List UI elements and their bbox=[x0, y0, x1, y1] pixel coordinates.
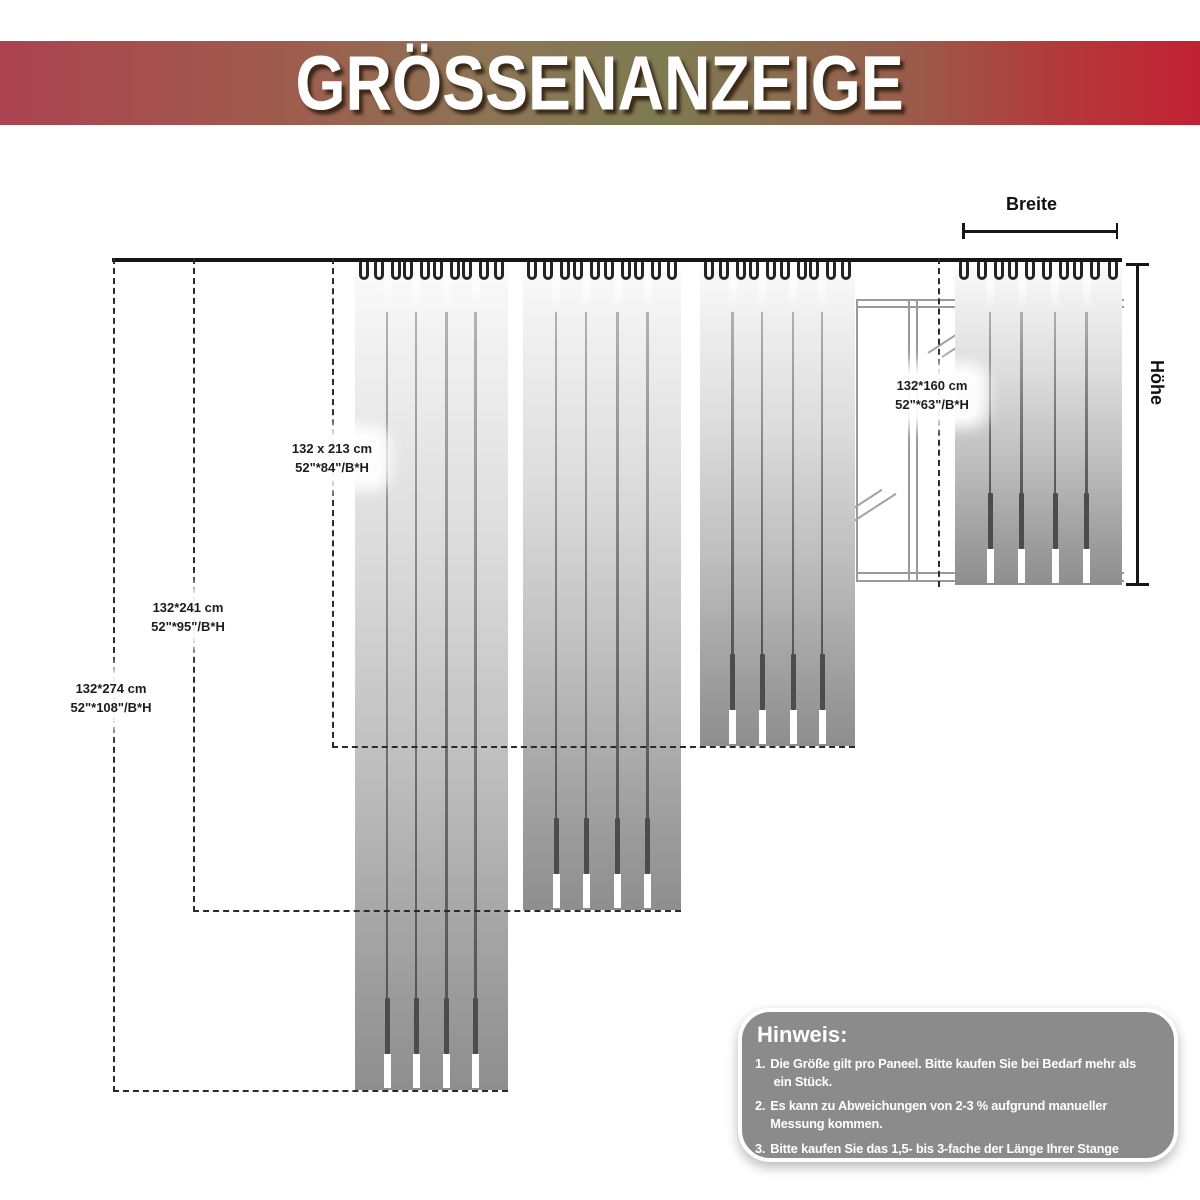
fabric-fold-line bbox=[989, 312, 992, 493]
size-label-cm: 132 x 213 cm bbox=[292, 439, 372, 458]
fabric-fold-line bbox=[585, 312, 588, 818]
note-item: 2.Es kann zu Abweichungen von 2-3 % aufg… bbox=[755, 1097, 1162, 1132]
fabric-highlight bbox=[383, 268, 391, 312]
fabric-fold-line bbox=[555, 312, 558, 818]
fabric-hem-gap bbox=[729, 710, 736, 744]
size-guide-infographic: GRÖSSENANZEIGE 132*274 cm52"*108"/B*H132… bbox=[0, 0, 1200, 1200]
fabric-hem-gap bbox=[384, 1054, 391, 1088]
fabric-hem-gap bbox=[614, 874, 621, 908]
fabric-fold-shadow bbox=[414, 998, 419, 1054]
height-measure-label: Höhe bbox=[1146, 360, 1167, 405]
fabric-fold-line bbox=[616, 312, 619, 818]
fabric-hem-gap bbox=[1052, 549, 1059, 583]
fabric-highlight bbox=[412, 268, 420, 312]
width-measure-line bbox=[962, 230, 1118, 233]
size-label-inch: 52"*63"/B*H bbox=[895, 395, 969, 414]
fabric-highlight bbox=[986, 268, 994, 312]
size-label-inch: 52"*95"/B*H bbox=[151, 617, 225, 636]
fabric-fold-shadow bbox=[791, 654, 796, 710]
note-item-number: 1. bbox=[755, 1055, 765, 1090]
size-label-cm: 132*274 cm bbox=[71, 679, 152, 698]
height-measure-line bbox=[1136, 263, 1139, 585]
fabric-hem-gap bbox=[443, 1054, 450, 1088]
height-measure-tick-top bbox=[1126, 263, 1149, 266]
size-label-cm: 132*241 cm bbox=[151, 598, 225, 617]
fabric-highlight bbox=[758, 268, 766, 312]
fabric-fold-line bbox=[1085, 312, 1088, 493]
size-label-inch: 52"*108"/B*H bbox=[71, 698, 152, 717]
fabric-hem-gap bbox=[819, 710, 826, 744]
fabric-fold-shadow bbox=[645, 818, 650, 874]
fabric-hem-gap bbox=[1083, 549, 1090, 583]
note-item-number: 2. bbox=[755, 1097, 765, 1132]
dashed-guide-vertical bbox=[332, 258, 334, 748]
fabric-highlight bbox=[552, 268, 560, 312]
fabric-hem-gap bbox=[553, 874, 560, 908]
fabric-fold-line bbox=[761, 312, 764, 654]
fabric-hem-gap bbox=[759, 710, 766, 744]
page-title: GRÖSSENANZEIGE bbox=[296, 39, 904, 127]
fabric-highlight bbox=[789, 268, 797, 312]
fabric-hem-gap bbox=[790, 710, 797, 744]
note-item-text: Es kann zu Abweichungen von 2-3 % aufgru… bbox=[770, 1097, 1107, 1132]
fabric-hem-gap bbox=[644, 874, 651, 908]
fabric-fold-shadow bbox=[554, 818, 559, 874]
fabric-fold-line bbox=[386, 312, 389, 998]
size-label: 132*274 cm52"*108"/B*H bbox=[62, 675, 161, 721]
width-measure-tick-left bbox=[962, 223, 965, 239]
fabric-fold-shadow bbox=[760, 654, 765, 710]
fabric-fold-line bbox=[415, 312, 418, 998]
dashed-guide-horizontal bbox=[332, 746, 855, 748]
note-item: 3.Bitte kaufen Sie das 1,5- bis 3-fache … bbox=[755, 1140, 1162, 1158]
fabric-hem-gap bbox=[413, 1054, 420, 1088]
fabric-fold-line bbox=[646, 312, 649, 818]
fabric-fold-shadow bbox=[473, 998, 478, 1054]
size-label-cm: 132*160 cm bbox=[895, 376, 969, 395]
width-measure-tick-right bbox=[1116, 223, 1119, 239]
fabric-hem-gap bbox=[583, 874, 590, 908]
dashed-guide-horizontal bbox=[193, 910, 681, 912]
fabric-hem-gap bbox=[472, 1054, 479, 1088]
fabric-fold-shadow bbox=[1053, 493, 1058, 549]
fabric-fold-shadow bbox=[385, 998, 390, 1054]
note-item-text: Die Größe gilt pro Paneel. Bitte kaufen … bbox=[770, 1055, 1136, 1090]
note-item-text: Bitte kaufen Sie das 1,5- bis 3-fache de… bbox=[770, 1140, 1119, 1158]
height-measure-tick-bottom bbox=[1126, 583, 1149, 586]
size-label-inch: 52"*84"/B*H bbox=[292, 458, 372, 477]
window-mullion-right bbox=[916, 299, 918, 582]
note-item: 1.Die Größe gilt pro Paneel. Bitte kaufe… bbox=[755, 1055, 1162, 1090]
fabric-fold-shadow bbox=[730, 654, 735, 710]
fabric-highlight bbox=[1051, 268, 1059, 312]
fabric-fold-line bbox=[1020, 312, 1023, 493]
curtain-panel bbox=[955, 266, 1122, 585]
window-glass-reflection bbox=[853, 493, 896, 522]
size-label: 132 x 213 cm52"*84"/B*H bbox=[283, 435, 381, 481]
fabric-fold-line bbox=[474, 312, 477, 998]
fabric-hem-gap bbox=[1018, 549, 1025, 583]
note-box: Hinweis: 1.Die Größe gilt pro Paneel. Bi… bbox=[738, 1008, 1178, 1162]
fabric-fold-shadow bbox=[584, 818, 589, 874]
window-left-jamb bbox=[856, 299, 858, 582]
size-label: 132*160 cm52"*63"/B*H bbox=[886, 372, 978, 418]
fabric-fold-line bbox=[792, 312, 795, 654]
title-banner: GRÖSSENANZEIGE bbox=[0, 41, 1200, 125]
dashed-guide-vertical bbox=[193, 258, 195, 912]
fabric-hem-gap bbox=[987, 549, 994, 583]
fabric-highlight bbox=[582, 268, 590, 312]
fabric-fold-shadow bbox=[615, 818, 620, 874]
fabric-fold-line bbox=[445, 312, 448, 998]
curtain-panel bbox=[700, 266, 855, 746]
note-item-number: 3. bbox=[755, 1140, 765, 1158]
fabric-fold-shadow bbox=[444, 998, 449, 1054]
fabric-fold-line bbox=[821, 312, 824, 654]
curtain-panel bbox=[355, 266, 508, 1090]
fabric-fold-line bbox=[1054, 312, 1057, 493]
size-label: 132*241 cm52"*95"/B*H bbox=[142, 594, 234, 640]
curtain-rod bbox=[112, 258, 1122, 262]
fabric-fold-line bbox=[731, 312, 734, 654]
note-items: 1.Die Größe gilt pro Paneel. Bitte kaufe… bbox=[755, 1055, 1162, 1157]
window-mullion-left bbox=[908, 299, 910, 582]
fabric-fold-shadow bbox=[988, 493, 993, 549]
fabric-fold-shadow bbox=[1019, 493, 1024, 549]
note-title: Hinweis: bbox=[757, 1022, 1162, 1048]
dashed-guide-vertical bbox=[938, 258, 940, 587]
fabric-fold-shadow bbox=[820, 654, 825, 710]
fabric-fold-shadow bbox=[1084, 493, 1089, 549]
dashed-guide-horizontal bbox=[113, 1090, 508, 1092]
curtain-panel bbox=[523, 266, 681, 910]
width-measure-label: Breite bbox=[1006, 194, 1057, 215]
